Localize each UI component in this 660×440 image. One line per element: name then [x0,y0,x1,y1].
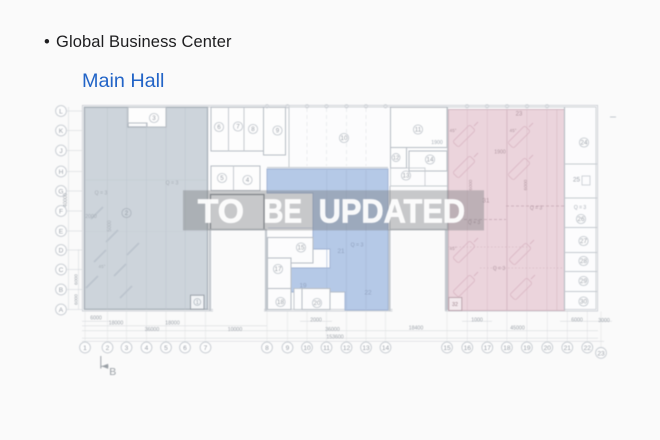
svg-text:23: 23 [516,112,523,118]
svg-text:1000: 1000 [471,318,483,324]
svg-text:6: 6 [183,345,187,352]
svg-text:D: D [59,247,64,254]
svg-text:13: 13 [362,345,370,352]
svg-text:23: 23 [597,350,605,357]
svg-text:14: 14 [382,345,390,352]
svg-text:1900: 1900 [494,150,506,156]
svg-text:6000: 6000 [571,317,583,323]
svg-text:29: 29 [580,278,587,285]
svg-text:1: 1 [196,300,199,306]
svg-text:Q = 3: Q = 3 [493,266,506,272]
svg-text:6000: 6000 [90,315,102,321]
svg-text:B: B [109,366,116,378]
svg-text:3: 3 [125,345,129,352]
svg-text:2: 2 [125,210,129,217]
svg-text:2: 2 [106,345,110,352]
svg-text:21: 21 [337,248,345,255]
svg-text:6000: 6000 [74,294,80,305]
svg-text:17: 17 [484,345,492,352]
svg-text:18: 18 [503,345,511,352]
svg-text:20: 20 [314,300,321,307]
svg-text:E: E [59,228,64,235]
svg-text:3000: 3000 [598,318,610,324]
svg-text:8: 8 [251,126,255,133]
svg-text:10000: 10000 [228,327,243,333]
svg-text:5: 5 [220,175,224,182]
svg-text:36000: 36000 [325,327,340,333]
svg-text:30: 30 [580,299,587,306]
svg-text:18400: 18400 [409,326,424,332]
svg-text:5: 5 [164,345,168,352]
svg-text:10: 10 [303,345,311,352]
svg-text:32: 32 [452,302,458,308]
svg-text:2000: 2000 [85,214,97,220]
svg-text:4: 4 [145,345,149,352]
svg-text:12: 12 [393,156,399,162]
svg-text:F: F [59,208,63,215]
svg-text:K: K [59,128,64,135]
svg-text:45°: 45° [510,128,517,133]
svg-text:19: 19 [523,345,531,352]
svg-text:6000: 6000 [74,274,80,285]
svg-text:40000: 40000 [63,193,69,207]
svg-text:6: 6 [217,124,221,131]
svg-text:1: 1 [83,345,87,352]
svg-text:27: 27 [580,238,587,245]
svg-text:14: 14 [427,157,434,164]
svg-text:4: 4 [246,177,250,184]
svg-text:25: 25 [573,177,580,184]
svg-text:153600: 153600 [326,335,343,341]
svg-text:45°: 45° [99,264,106,269]
svg-text:12: 12 [343,345,351,352]
svg-text:7: 7 [236,124,240,131]
svg-text:3: 3 [152,115,156,122]
svg-text:11: 11 [415,127,422,134]
svg-text:5000: 5000 [107,220,113,231]
svg-text:24: 24 [581,140,588,147]
svg-text:15: 15 [443,345,451,352]
svg-text:15: 15 [298,245,305,252]
svg-text:Q = 3: Q = 3 [166,181,179,187]
svg-text:6000: 6000 [523,179,529,190]
svg-text:A: A [59,307,64,314]
svg-text:9: 9 [276,128,280,135]
svg-text:10: 10 [341,135,348,142]
svg-text:7: 7 [204,345,208,352]
svg-text:17: 17 [275,266,282,273]
svg-text:B: B [59,287,64,294]
svg-text:Q = 3: Q = 3 [95,191,108,197]
svg-text:21: 21 [564,345,572,352]
svg-text:20: 20 [544,345,552,352]
svg-text:1900: 1900 [431,140,443,146]
svg-text:2000: 2000 [310,317,322,323]
svg-text:8: 8 [265,345,269,352]
svg-text:45°: 45° [450,128,457,133]
svg-text:18000: 18000 [109,321,124,327]
svg-text:18: 18 [277,299,284,306]
svg-text:Q = 3: Q = 3 [530,206,543,212]
svg-text:28: 28 [580,258,587,265]
svg-text:C: C [59,267,64,274]
svg-text:J: J [59,148,62,155]
svg-text:TOBEUPDATED: TOBEUPDATED [198,193,465,230]
svg-text:6000: 6000 [468,179,474,190]
svg-text:16: 16 [464,345,472,352]
svg-text:13: 13 [403,173,410,180]
svg-text:22: 22 [364,290,372,297]
svg-text:22: 22 [584,345,592,352]
svg-text:36000: 36000 [145,327,160,333]
svg-text:Q = 3: Q = 3 [574,205,587,211]
svg-text:9: 9 [286,345,290,352]
svg-text:18000: 18000 [165,321,180,327]
svg-text:45°: 45° [450,246,457,251]
svg-text:L: L [59,108,63,115]
svg-text:45000: 45000 [510,326,525,332]
svg-text:H: H [59,169,64,176]
svg-text:11: 11 [323,345,330,352]
svg-text:26: 26 [578,216,585,223]
svg-text:Q = 3: Q = 3 [351,243,364,249]
